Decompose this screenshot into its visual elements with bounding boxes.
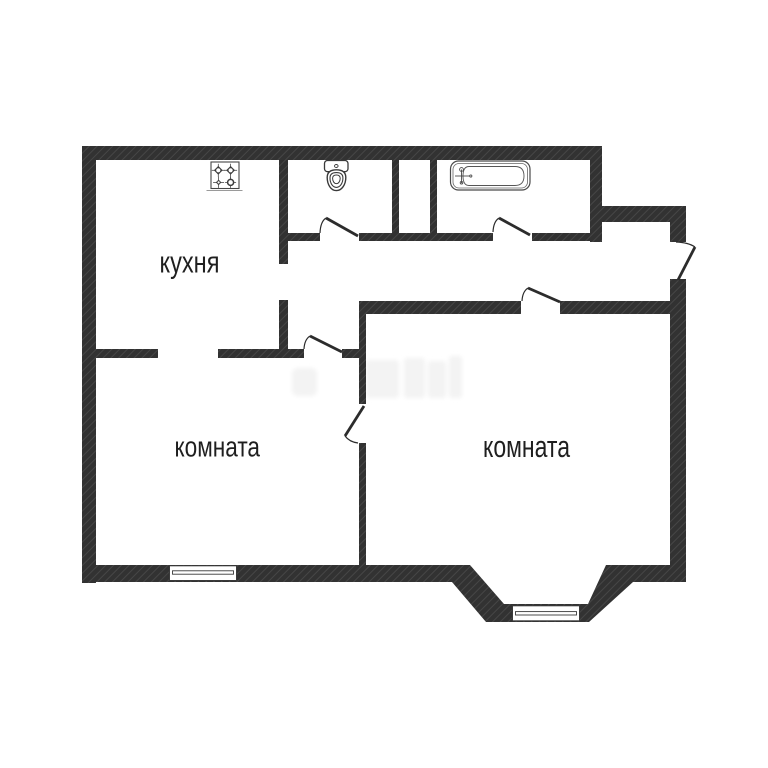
- svg-text:комната: комната: [175, 432, 261, 464]
- svg-text:кухня: кухня: [160, 245, 220, 280]
- svg-text:комната: комната: [483, 430, 570, 464]
